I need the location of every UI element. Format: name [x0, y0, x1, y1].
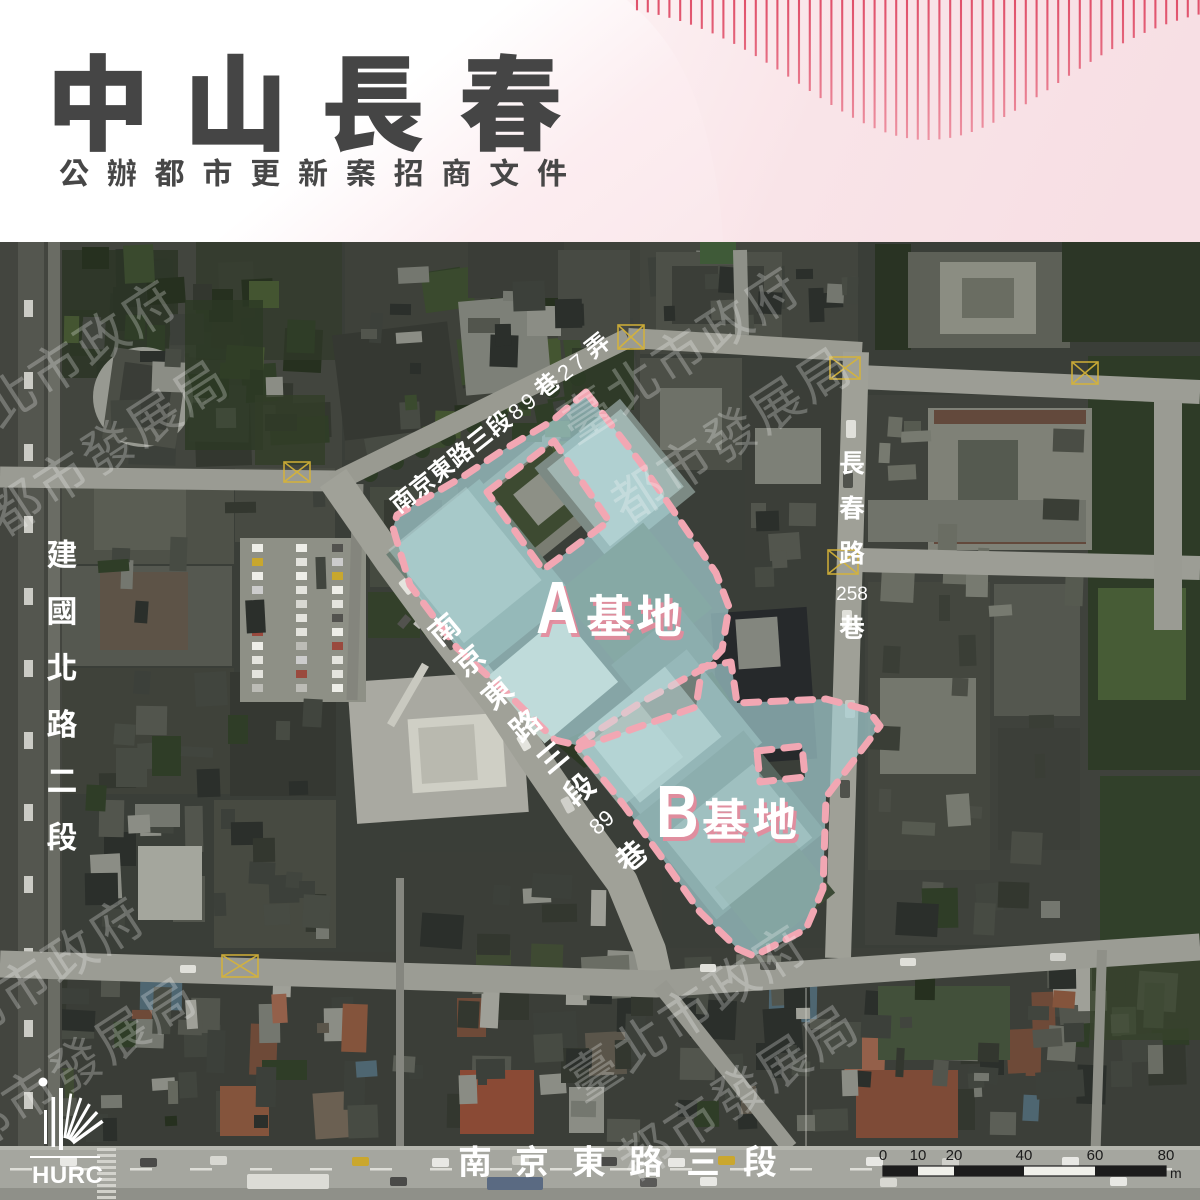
svg-text:80: 80: [1158, 1147, 1175, 1164]
svg-text:60: 60: [1087, 1147, 1104, 1164]
svg-text:258: 258: [836, 584, 868, 605]
svg-text:40: 40: [1016, 1147, 1033, 1164]
svg-text:B: B: [656, 771, 699, 854]
svg-text:A: A: [536, 567, 579, 650]
svg-text:20: 20: [946, 1147, 963, 1164]
svg-text:m: m: [1170, 1165, 1182, 1181]
svg-text:10: 10: [910, 1147, 927, 1164]
svg-text:0: 0: [879, 1147, 887, 1164]
svg-text:HURC: HURC: [32, 1162, 103, 1189]
